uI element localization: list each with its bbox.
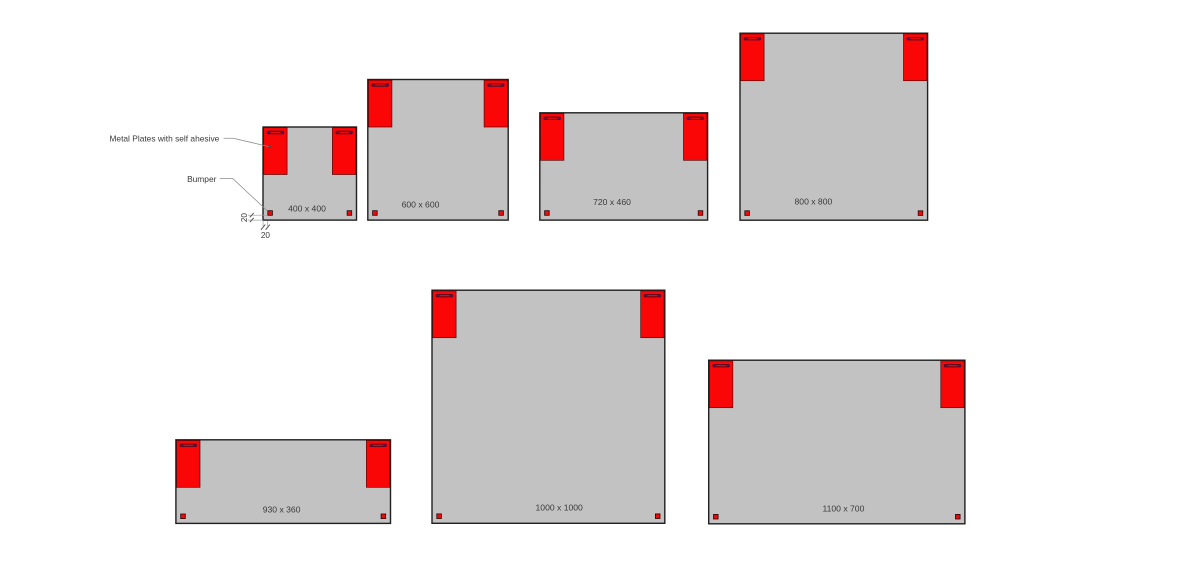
svg-text:930 x 360: 930 x 360 <box>263 505 301 515</box>
svg-text:800 x 800: 800 x 800 <box>795 196 833 206</box>
svg-text:20: 20 <box>261 231 271 240</box>
svg-text:20: 20 <box>240 213 249 223</box>
svg-text:600 x 600: 600 x 600 <box>402 199 440 209</box>
svg-text:Bumper: Bumper <box>187 174 217 184</box>
svg-text:Metal Plates with self ahesive: Metal Plates with self ahesive <box>109 134 219 144</box>
svg-text:720 x 460: 720 x 460 <box>593 197 631 207</box>
svg-text:1000 x 1000: 1000 x 1000 <box>536 503 584 513</box>
svg-text:1100 x 700: 1100 x 700 <box>822 504 864 514</box>
svg-text:400 x 400: 400 x 400 <box>288 203 326 213</box>
